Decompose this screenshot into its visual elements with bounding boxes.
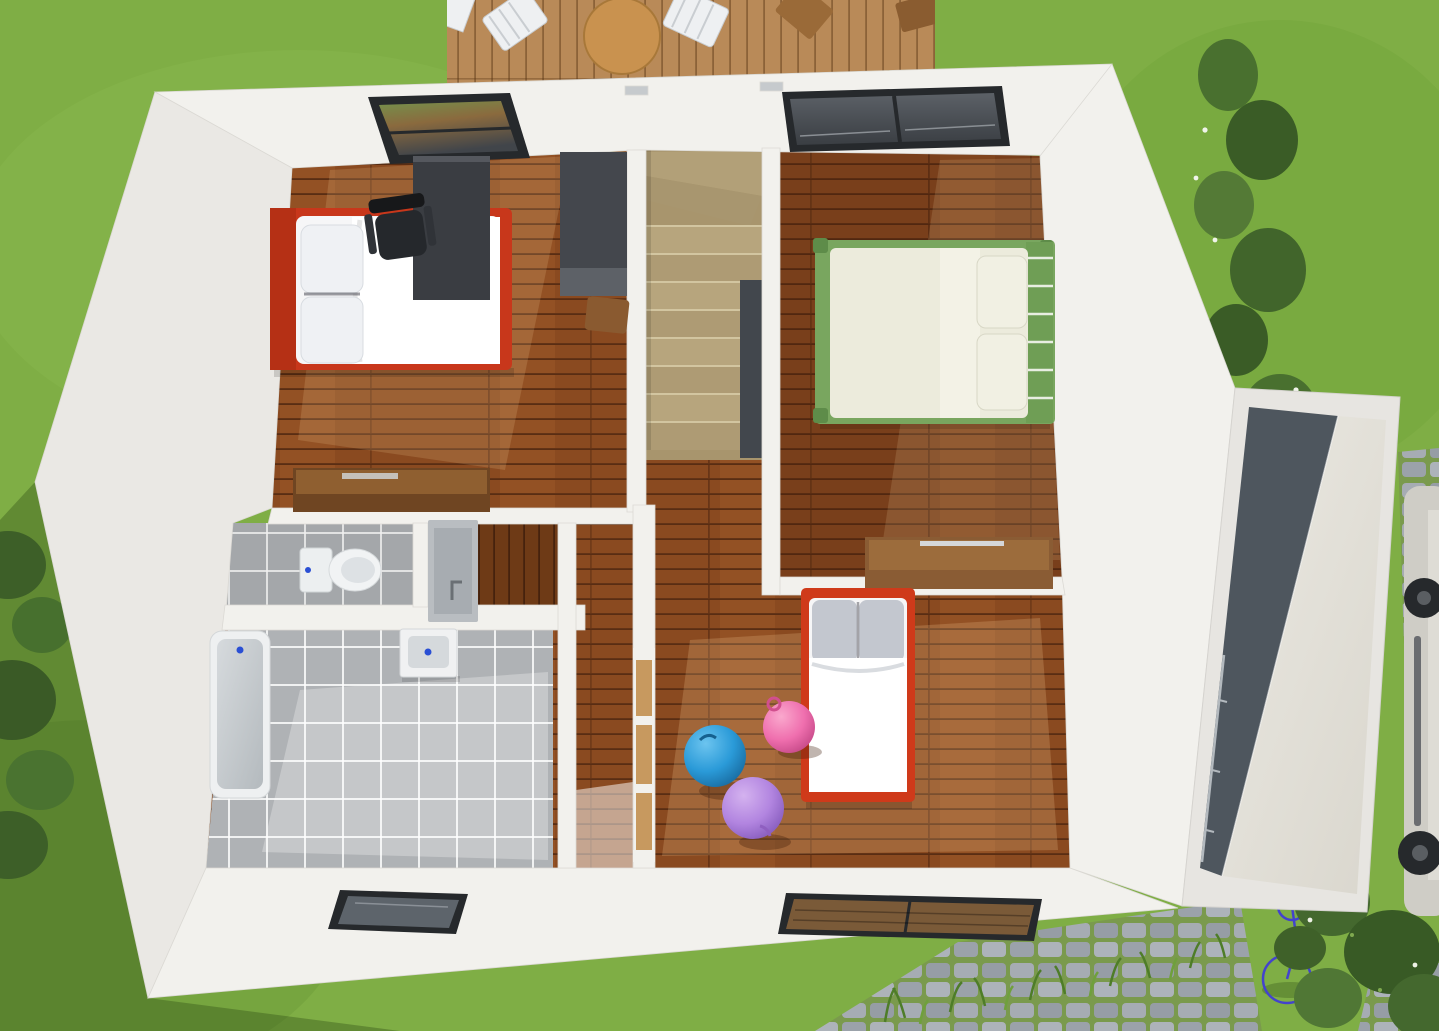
master-bed-headboard xyxy=(270,208,296,370)
green-bed-headboard xyxy=(1026,242,1053,423)
wall-cap xyxy=(625,86,648,95)
car-roof-highlight xyxy=(1428,510,1439,880)
sun-patch xyxy=(576,782,633,868)
washbasin-drain xyxy=(425,649,432,656)
stair-step xyxy=(646,394,740,422)
blossom xyxy=(1213,238,1218,243)
desk xyxy=(413,156,490,300)
toilet-seat xyxy=(341,557,375,583)
wall-stair-right xyxy=(762,148,780,595)
kids-pillow xyxy=(812,600,857,662)
bathroom-window-glass xyxy=(338,896,459,928)
stair-step xyxy=(646,282,740,310)
stair-step xyxy=(646,226,762,254)
wardrobe-front xyxy=(560,268,627,296)
stair-step xyxy=(646,422,740,450)
kids-pillow xyxy=(859,600,904,662)
pillow xyxy=(977,256,1027,328)
bed-post xyxy=(813,238,828,253)
stair-step xyxy=(646,254,762,282)
door-gap xyxy=(636,784,652,793)
pillow xyxy=(301,225,363,293)
blossom xyxy=(1413,963,1418,968)
car-wheel-hub xyxy=(1417,591,1431,605)
leaf-speckle xyxy=(1350,933,1354,937)
blossom xyxy=(1308,918,1313,923)
dresser-tray xyxy=(342,473,398,479)
washing-nook-floor xyxy=(478,523,558,607)
blossom xyxy=(1194,176,1199,181)
toilet-button xyxy=(305,567,311,573)
desk-edge xyxy=(413,156,490,162)
deck-round-table xyxy=(584,0,660,74)
stair-step xyxy=(646,310,740,338)
wall-stair-left xyxy=(627,150,646,512)
bathtub-interior xyxy=(217,639,263,789)
blossom xyxy=(1202,127,1207,132)
chair-seat xyxy=(374,209,428,261)
wall-cap xyxy=(760,82,783,91)
pillow xyxy=(301,297,363,363)
door-gap xyxy=(636,716,652,725)
stair-wall-shadow xyxy=(646,150,651,450)
wall-wc-east xyxy=(413,523,428,607)
staircase xyxy=(646,150,762,458)
duvet-fold-band xyxy=(940,248,980,418)
dresser-handle xyxy=(920,541,1004,546)
wall-bathroom-east xyxy=(558,523,576,868)
car-door-line xyxy=(1414,636,1421,826)
toilet-tank xyxy=(300,548,332,592)
door-frame-cap xyxy=(633,648,655,660)
side-chair xyxy=(584,296,629,334)
car-wheel-hub xyxy=(1412,845,1428,861)
pillow xyxy=(977,334,1027,410)
bathtub-drain xyxy=(237,647,244,654)
faucet-unit-panel xyxy=(434,528,472,614)
bed-post xyxy=(813,408,828,423)
scene-canvas xyxy=(0,0,1439,1031)
play-ball-blue xyxy=(684,725,746,787)
stair-step xyxy=(646,338,740,366)
hall-door xyxy=(633,648,655,862)
wall-bathroom-north xyxy=(222,605,585,630)
kids-duvet xyxy=(809,658,907,792)
stair-void xyxy=(740,280,762,458)
tan-door-panel xyxy=(636,660,652,850)
door-frame-cap xyxy=(633,850,655,862)
sun-patch xyxy=(262,672,548,860)
parked-car xyxy=(1398,486,1439,916)
leaf-speckle xyxy=(1378,988,1382,992)
floorplan-render xyxy=(0,0,1439,1031)
play-ball-purple xyxy=(722,777,784,839)
stair-step xyxy=(646,366,740,394)
